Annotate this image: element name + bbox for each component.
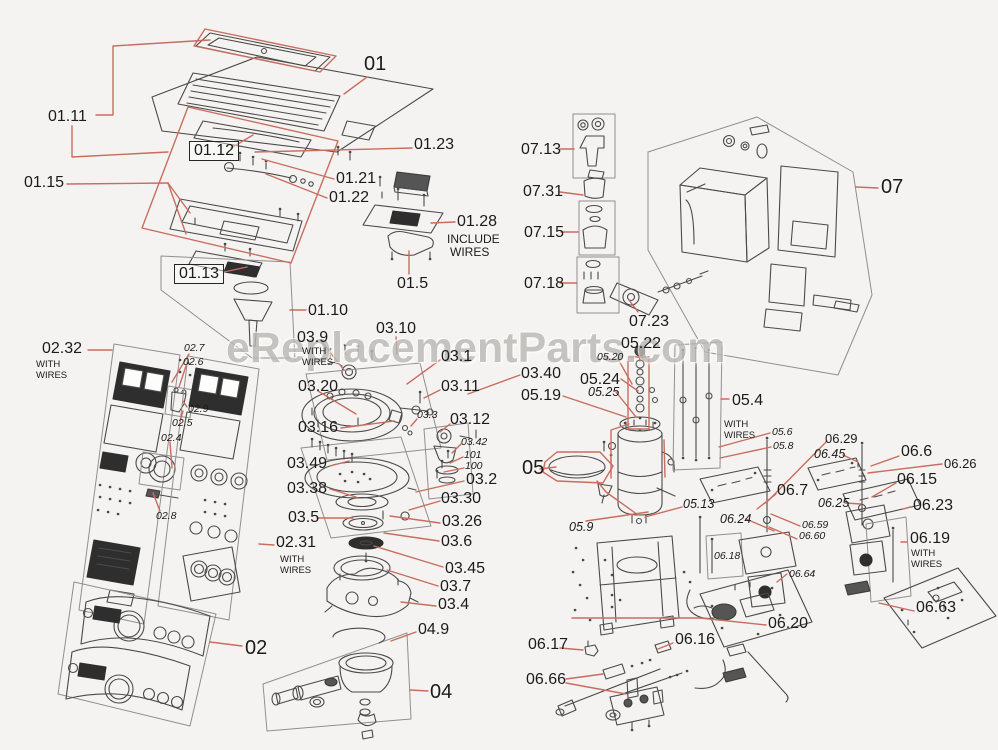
leader-01-28 [431,222,455,223]
leader-01 [344,77,367,94]
part-label-06-6: 06.6 [901,444,932,460]
leader-06-59 [771,514,800,526]
part-label-05-6: 05.6 [772,427,792,438]
leader-03-11 [424,390,440,398]
part-label-04: 04 [430,682,452,702]
leader-01-11-b [72,126,168,157]
part-panel-right [158,356,259,620]
leader-06-6 [871,456,899,466]
part-label-03-42: 03.42 [461,437,487,448]
part-label-02-32-note-2: WIRES [36,371,67,381]
leader-02 [210,642,242,646]
part-label-06-15: 06.15 [897,472,937,488]
part-boiler-bracket [573,536,690,635]
part-top-tray [196,33,330,71]
part-label-05-22: 05.22 [621,336,661,352]
leader-03-6 [384,533,439,541]
part-label-06-19-note-2: WIRES [911,560,942,570]
parts-diagram-page: eReplacementParts.com 0101.1101.1201.230… [0,0,998,750]
part-label-03-16: 03.16 [298,420,338,436]
part-label-03-10: 03.10 [376,321,416,337]
part-wire-kit [673,342,722,470]
part-label-07: 07 [881,177,903,197]
part-label-02-32-note-1: WITH [36,360,60,370]
part-label-07-15: 07.15 [524,225,564,241]
part-label-01-10: 01.10 [308,303,348,319]
part-label-06-29: 06.29 [825,432,858,445]
part-water-tank [680,168,769,262]
part-label-03-26: 03.26 [442,514,482,530]
part-label-03-7: 03.7 [440,579,471,595]
part-label-01-28-note-2: WIRES [450,246,489,258]
part-label-03-9: 03.9 [297,330,328,346]
part-label-02-4: 02.4 [161,433,181,444]
part-label-07-18: 07.18 [524,276,564,292]
part-steam-pipes [556,641,788,730]
part-label-01-11: 01.11 [48,109,87,125]
part-label-06-63: 06.63 [916,600,956,616]
part-label-03-3: 03.3 [417,410,437,421]
part-label-06-19: 06.19 [910,531,950,547]
part-label-05-4: 05.4 [732,393,763,409]
part-label-01-23: 01.23 [414,137,454,153]
part-drip-tray-small [549,456,605,478]
part-label-03-45: 03.45 [445,561,485,577]
part-label-05-19: 05.19 [521,388,561,404]
leader-05-9 [586,512,648,521]
part-label-03-2: 03.2 [466,472,497,488]
part-label-01-28: 01.28 [457,214,497,230]
part-label-02-6: 02.6 [183,357,203,368]
part-label-03-40: 03.40 [521,366,561,382]
part-label-06-66: 06.66 [526,672,566,688]
part-back-panel [778,166,838,257]
part-portafilter [263,628,411,739]
part-label-05: 05 [522,458,544,478]
part-label-02-8: 02.8 [156,511,176,522]
part-label-02-31: 02.31 [276,535,316,551]
part-label-05-4-note-2: WIRES [724,431,755,441]
part-label-03-9-note-1: WITH [302,347,326,357]
leader-01-15-a [67,183,168,184]
part-housing-small-parts [724,125,860,331]
leader-101 [450,457,463,463]
part-label-01-28-note-1: INCLUDE [447,233,500,245]
part-label-06-60: 06.60 [799,531,825,542]
highlight-boiler-highlight-right [664,440,665,477]
part-label-02: 02 [245,638,267,658]
part-label-03-30: 03.30 [441,491,481,507]
part-pin-box [700,517,743,579]
part-label-02-5: 02.5 [172,418,192,429]
leader-06-23 [903,507,910,509]
leader-03-26 [390,516,440,523]
part-label-03-49: 03.49 [287,456,327,472]
part-label-01: 01 [364,54,386,74]
leader-02-4 [170,442,172,468]
part-label-03-9-note-2: WIRES [302,358,333,368]
highlight-boiler-highlight-left [611,424,629,478]
part-label-03-1: 03.1 [441,349,472,365]
part-label-06-26: 06.26 [944,457,977,470]
part-label-02-31-note-1: WITH [280,555,304,565]
part-label-05-20: 05.20 [597,352,623,363]
part-label-06-45: 06.45 [814,448,845,461]
part-label-03-20: 03.20 [298,379,338,395]
part-label-01-22: 01.22 [329,190,369,206]
part-front-panels [58,582,216,726]
part-valve-kit-column [573,114,619,313]
leader-05-22 [639,351,640,361]
part-label-03-38: 03.38 [287,481,327,497]
part-label-03-6: 03.6 [441,534,472,550]
part-label-100: 100 [465,461,483,472]
part-label-07-23: 07.23 [629,314,669,330]
leader-07 [856,187,878,188]
leader-03-10 [396,337,397,354]
part-label-03-4: 03.4 [438,597,469,613]
part-label-06-17: 06.17 [528,637,568,653]
part-panel-left [79,344,180,624]
part-label-02-7: 02.7 [184,343,204,354]
leader-05-8 [720,447,771,458]
leader-03-16 [341,421,394,428]
leader-06-66-b [566,683,626,694]
part-label-06-16: 06.16 [675,632,715,648]
part-label-02-31-note-2: WIRES [280,566,311,576]
leader-03-49 [330,461,349,466]
part-label-01-15: 01.15 [24,175,64,191]
part-label-03-12: 03.12 [450,412,490,428]
part-descale-valve [610,271,708,315]
leader-01-15-b [168,183,190,213]
part-label-04-9: 04.9 [418,622,449,638]
leader-03-4 [401,602,436,606]
part-label-06-7: 06.7 [777,483,808,499]
part-label-05-9: 05.9 [569,521,593,534]
leader-05-19 [563,396,626,417]
part-label-06-19-note-1: WITH [911,549,935,559]
part-label-05-4-note-1: WITH [724,420,748,430]
part-label-03-11: 03.11 [441,379,480,395]
part-label-06-23: 06.23 [913,498,953,514]
leader-06-60 [769,527,797,539]
part-label-01-21: 01.21 [336,171,376,187]
leader-02-31 [259,544,274,545]
part-label-01-13: 01.13 [174,264,224,284]
part-silicone-funnel [598,484,612,503]
exploded-view-drawing [0,0,998,750]
part-label-01-12: 01.12 [189,141,239,161]
leader-03-30 [409,501,440,510]
leader-100 [444,468,464,472]
leader-04 [410,690,428,691]
part-label-02-9: 02.9 [188,404,208,415]
part-label-07-31: 07.31 [523,184,563,200]
part-label-01-5: 01.5 [397,276,428,292]
part-label-03-5: 03.5 [288,510,319,526]
leader-03-7 [387,570,438,586]
part-label-06-64: 06.64 [789,569,815,580]
leader-07-31 [560,192,583,195]
part-label-06-59: 06.59 [802,520,828,531]
part-label-05-8: 05.8 [773,441,793,452]
part-label-06-18: 06.18 [714,551,740,562]
leader-05-13 [645,507,682,517]
leader-06-63 [879,603,914,611]
leader-03-45 [374,546,443,567]
part-label-06-20: 06.20 [768,616,808,632]
part-label-07-13: 07.13 [521,142,561,158]
part-label-101: 101 [464,450,482,461]
part-label-06-25: 06.25 [818,497,849,510]
highlight-top-tray-highlight [194,29,336,72]
leader-06-66-a [566,674,603,679]
part-label-05-13: 05.13 [683,498,714,511]
leader-03-42 [452,444,461,453]
part-label-06-24: 06.24 [720,513,751,526]
part-label-05-25: 05.25 [588,386,619,399]
part-label-02-32: 02.32 [42,341,82,357]
leader-04-9 [391,632,416,641]
